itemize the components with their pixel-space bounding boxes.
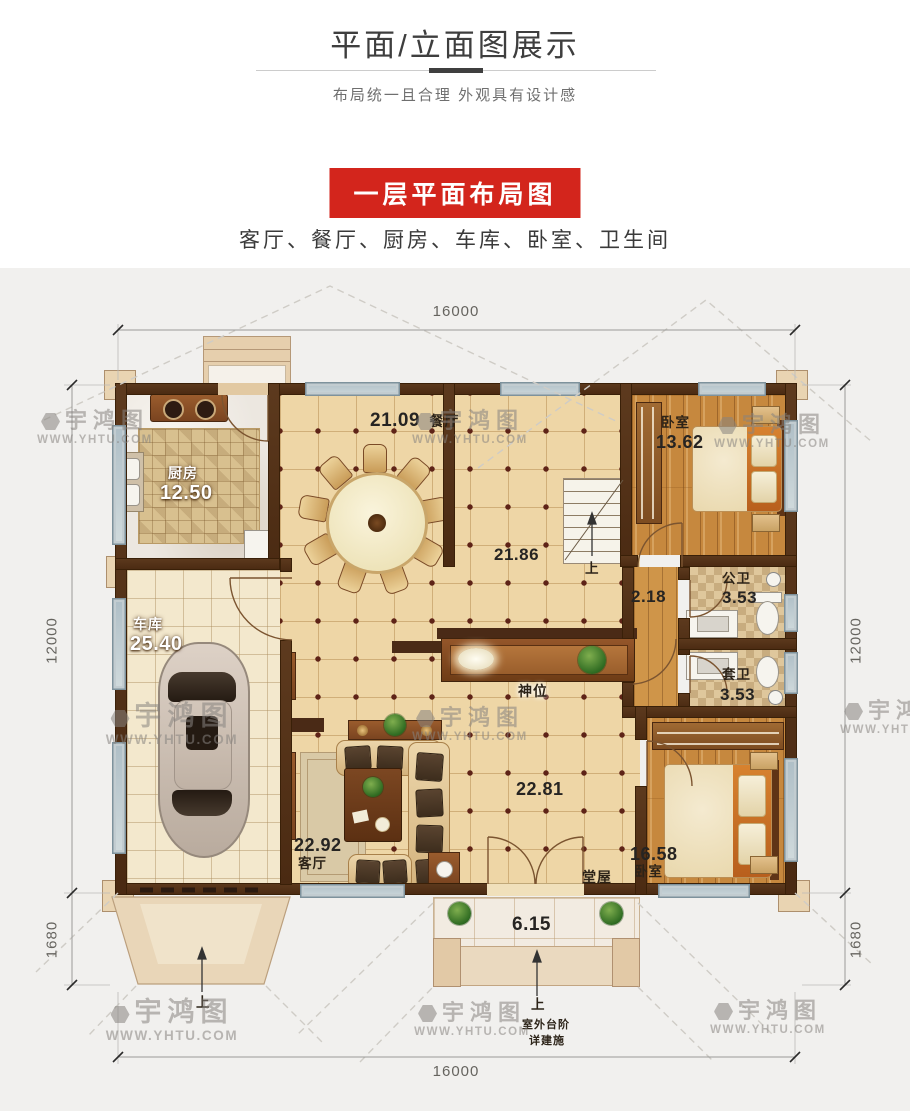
label-hall-lower-area: 22.81	[516, 780, 564, 798]
label-bath-suite-name: 套卫	[722, 668, 751, 683]
half-wall	[392, 641, 444, 653]
window	[500, 382, 580, 396]
coffee-table	[344, 768, 402, 842]
room-list-line: 客厅、餐厅、厨房、车库、卧室、卫生间	[0, 224, 910, 254]
burner	[163, 399, 184, 420]
pillow	[751, 471, 777, 503]
label-bedroom-bottom-name: 卧室	[634, 865, 663, 880]
wall-garage-right	[280, 640, 292, 885]
label-shrine: 神位	[518, 684, 548, 699]
bed	[692, 426, 782, 512]
wall-bath-left	[678, 567, 690, 580]
car-rear-window	[172, 790, 232, 816]
pillow	[738, 775, 766, 817]
porch-side-block	[612, 938, 640, 987]
entrance-opening	[487, 883, 584, 896]
window	[698, 382, 766, 396]
wall-kitchen-bottom	[115, 558, 280, 570]
label-bath-public-area: 3.53	[722, 589, 757, 606]
toilet-bowl	[756, 656, 779, 688]
label-porch-up: 上	[531, 998, 546, 1013]
wall-bedroom-top-bottom	[620, 555, 638, 567]
section-banner: 一层平面布局图	[329, 168, 580, 218]
wardrobe-hangers	[657, 727, 779, 745]
wall-kitchen-right	[268, 383, 280, 570]
wardrobe-hangers	[641, 407, 657, 519]
car-windshield	[168, 672, 236, 702]
vanity	[686, 610, 738, 638]
dim-left-main: 12000	[44, 601, 61, 681]
porch-side-block	[433, 938, 461, 987]
wall-stair-bedroom	[620, 383, 632, 567]
console-plant	[578, 646, 606, 674]
wardrobe	[636, 402, 662, 524]
wardrobe	[652, 722, 784, 750]
dining-chair	[363, 444, 387, 473]
console-bowl	[357, 725, 368, 736]
table-plant	[363, 777, 383, 797]
label-garage-area: 25.40	[130, 634, 183, 654]
back-porch-step	[204, 361, 290, 362]
label-bedroom-bottom-area: 16.58	[630, 845, 678, 863]
label-steps-note-1: 室外台阶	[522, 1016, 570, 1032]
sofa-cushion	[344, 745, 372, 771]
dim-right-main: 12000	[848, 601, 865, 681]
window	[784, 652, 798, 694]
dining-chair	[297, 494, 330, 523]
window	[784, 594, 798, 632]
page-title: 平面/立面图展示	[0, 20, 910, 65]
page-subtitle: 布局统一且合理 外观具有设计感	[0, 84, 910, 105]
label-ramp-up: 上	[196, 996, 211, 1011]
stove	[150, 394, 228, 422]
window	[305, 382, 400, 396]
label-living-name: 客厅	[298, 857, 327, 872]
nightstand	[750, 856, 778, 874]
vanity-sink	[697, 616, 729, 632]
offering-bowl	[458, 648, 494, 670]
label-living-area: 22.92	[294, 836, 342, 854]
wall-bedroom-top-bottom	[680, 555, 797, 567]
label-garage-name: 车库	[133, 617, 163, 632]
back-door-opening	[218, 383, 268, 395]
dining-table	[326, 472, 428, 574]
toilet-bowl	[756, 601, 779, 635]
window	[784, 420, 798, 512]
window	[112, 425, 126, 545]
back-porch	[203, 336, 291, 388]
label-bedroom-top-name: 卧室	[661, 416, 690, 431]
table-plate	[375, 817, 390, 832]
porch-plant	[448, 902, 471, 925]
table-paper	[352, 810, 369, 824]
console-bowl	[421, 725, 432, 736]
label-corridor-area: 2.18	[631, 588, 666, 605]
porch-plant	[600, 902, 623, 925]
pillow	[751, 435, 777, 467]
floor-drain-icon	[768, 690, 783, 705]
side-table-bowl	[436, 861, 453, 878]
staircase	[563, 478, 627, 564]
sofa-cushion	[382, 859, 408, 885]
sofa-cushion	[416, 825, 444, 854]
window	[300, 884, 405, 898]
sofa-cushion	[415, 752, 444, 782]
sofa-cushion	[355, 859, 380, 884]
label-dining-area: 21.09	[370, 410, 420, 431]
dim-left-lower: 1680	[44, 900, 61, 980]
window	[112, 598, 126, 690]
floor-drain-icon	[766, 572, 781, 587]
label-kitchen-area: 12.50	[160, 483, 213, 503]
wall-bedroom-bottom-left	[635, 706, 647, 740]
label-bath-public-name: 公卫	[722, 572, 751, 587]
console-plant	[384, 714, 406, 736]
label-stairs-up: 上	[585, 562, 600, 577]
label-dining: 21.09 餐厅	[370, 411, 460, 431]
label-main-hall: 堂屋	[582, 870, 612, 885]
label-dining-name: 餐厅	[430, 413, 460, 429]
dim-right-lower: 1680	[848, 900, 865, 980]
burner	[195, 399, 216, 420]
label-porch-area: 6.15	[512, 915, 551, 934]
wall-bedroom-bottom-top	[622, 706, 797, 718]
window	[112, 742, 126, 854]
wall-garage-right	[280, 558, 292, 572]
label-bath-suite-area: 3.53	[720, 686, 755, 703]
dim-top: 16000	[396, 303, 516, 320]
sofa-cushion	[415, 788, 443, 817]
sofa-cushion	[376, 745, 403, 770]
nightstand	[750, 752, 778, 770]
label-bedroom-top-area: 13.62	[656, 433, 704, 451]
table-centerpiece	[368, 514, 386, 532]
dim-bottom: 16000	[396, 1063, 516, 1080]
car-sunroof	[186, 716, 218, 750]
window	[784, 758, 798, 862]
label-steps-note-2: 详建施	[529, 1032, 565, 1048]
title-divider-accent	[429, 68, 483, 73]
side-table	[428, 852, 460, 886]
car	[158, 642, 250, 858]
porch-step-strip	[459, 946, 614, 986]
label-hall-upper-area: 21.86	[494, 546, 539, 563]
nightstand	[752, 514, 780, 532]
label-kitchen-name: 厨房	[168, 466, 198, 481]
wall-corridor-left	[622, 682, 634, 708]
back-porch-step	[204, 349, 290, 350]
window	[658, 884, 750, 898]
nightstand	[752, 406, 780, 424]
wall-bath-divider	[678, 638, 797, 650]
